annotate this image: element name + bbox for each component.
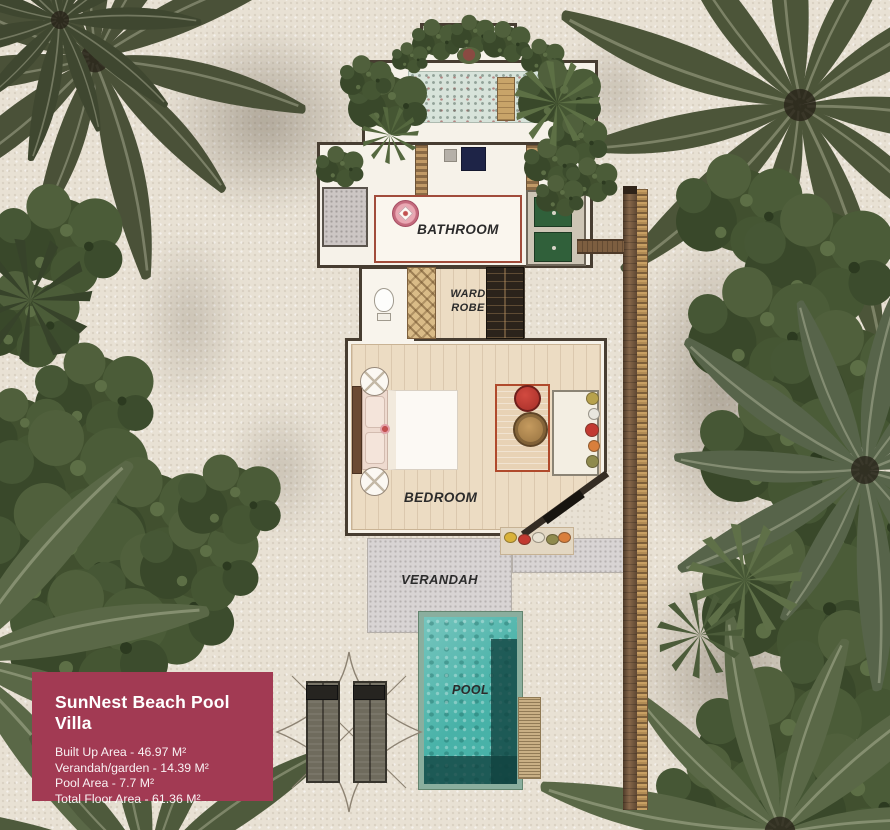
sun-lounger xyxy=(353,681,387,783)
flower-decor xyxy=(380,424,390,434)
wardrobe-label: WARD ROBE xyxy=(440,287,496,315)
sofa-cushion xyxy=(585,423,599,437)
beach-villa-floor-plan: BATHROOM WARD ROBE BEDROOM xyxy=(0,0,890,830)
bench-cushion xyxy=(558,532,571,543)
sofa-cushion xyxy=(588,408,600,420)
nightstand xyxy=(360,367,389,396)
outdoor-shower-mat xyxy=(461,147,486,171)
total-floor-area: Total Floor Area - 61.36 M² xyxy=(55,792,263,808)
outdoor-shower-pad xyxy=(322,187,368,247)
entry-walkway xyxy=(577,239,624,254)
pillow xyxy=(365,396,385,428)
garden-bench xyxy=(497,77,515,121)
bench-cushion xyxy=(532,532,545,543)
double-vanity xyxy=(526,190,586,266)
fence-thatch-fringe xyxy=(637,189,648,810)
sun-lounger xyxy=(306,681,340,783)
shade-sail xyxy=(272,646,427,818)
sink-basin xyxy=(534,197,572,227)
villa-title: SunNest Beach Pool Villa xyxy=(55,692,263,734)
tree-shadow xyxy=(120,200,260,440)
toilet-bowl xyxy=(374,288,394,312)
floor-drain xyxy=(444,149,457,162)
round-coffee-table xyxy=(513,412,548,447)
pillow xyxy=(365,432,385,464)
turtle-ornament xyxy=(457,47,481,64)
pool-bench-bottom xyxy=(424,756,517,784)
verandah-garden-area: Verandah/garden - 14.39 M² xyxy=(55,761,263,777)
info-card: SunNest Beach Pool Villa Built Up Area -… xyxy=(32,672,273,801)
bed-headboard xyxy=(352,386,362,474)
bench-cushion xyxy=(546,534,559,545)
nightstand xyxy=(360,467,389,496)
lounger-headrest xyxy=(353,685,385,700)
bench-cushion xyxy=(518,534,531,545)
sofa-cushion xyxy=(586,455,599,468)
lounger-headrest xyxy=(306,685,338,700)
sink-basin xyxy=(534,232,572,262)
sofa-cushion xyxy=(588,440,600,452)
sofa-cushion xyxy=(586,392,599,405)
basin-inlay xyxy=(398,206,414,222)
pool-label: POOL xyxy=(424,683,517,697)
toilet xyxy=(374,288,394,324)
bench-cushion xyxy=(504,532,517,543)
built-up-area: Built Up Area - 46.97 M² xyxy=(55,745,263,761)
verandah-label: VERANDAH xyxy=(401,572,478,599)
toilet-tank xyxy=(377,313,391,321)
bed-duvet xyxy=(388,390,458,470)
pool-area: POOL xyxy=(424,617,517,784)
poolside-mat xyxy=(518,697,541,779)
luggage-rack xyxy=(407,267,436,339)
red-ottoman xyxy=(514,385,541,412)
round-basin xyxy=(392,200,419,227)
bedroom-label: BEDROOM xyxy=(404,490,477,505)
pool-area-size: Pool Area - 7.7 M² xyxy=(55,776,263,792)
pebble-garden-pad xyxy=(408,71,539,123)
privacy-fence xyxy=(623,186,637,810)
fence-top-cap xyxy=(623,186,637,194)
